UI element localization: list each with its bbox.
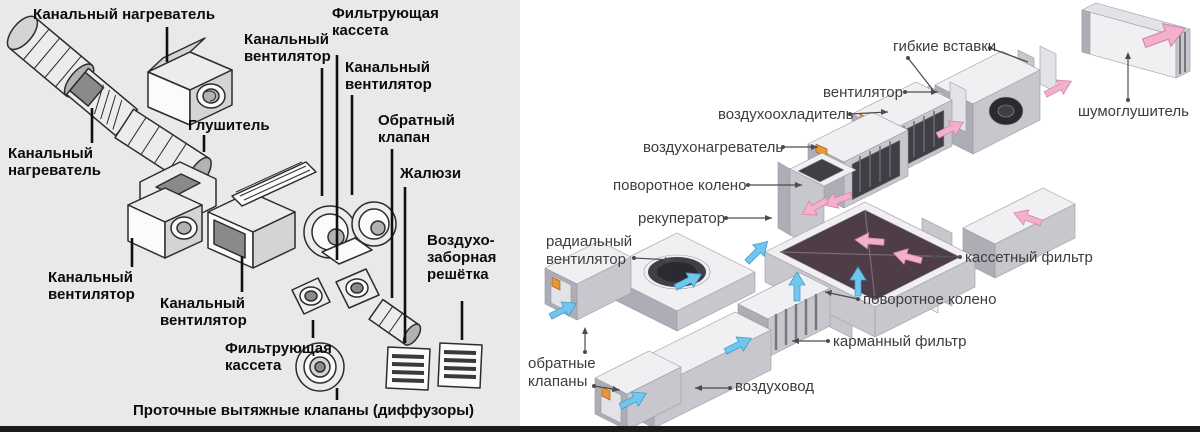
check-valve-unit — [369, 300, 424, 348]
label-filter-cassette-top: Фильтрующая кассета — [332, 5, 457, 39]
bottom-edge-bar — [0, 426, 1200, 432]
label-flexible-inserts: гибкие вставки — [893, 38, 996, 56]
label-duct-heater-left: Канальный нагреватель — [8, 145, 113, 179]
label-radial-fan: радиальный вентилятор — [546, 233, 641, 269]
label-air-duct: воздуховод — [735, 378, 814, 396]
square-grille-2 — [438, 343, 482, 388]
label-air-intake-grille: Воздухо-заборная решётка — [427, 232, 527, 283]
label-duct-fan-bottom-mid: Канальный вентилятор — [160, 295, 258, 329]
label-cassette-filter: кассетный фильтр — [965, 249, 1093, 267]
label-silencer: Глушитель — [188, 117, 270, 134]
label-air-cooler: воздухоохладитель — [718, 106, 853, 124]
label-check-valves: обратные клапаны — [528, 355, 620, 391]
louvre-slats — [232, 162, 316, 206]
label-recuperator: рекуператор — [638, 210, 725, 228]
label-duct-heater-top: Канальный нагреватель — [33, 6, 215, 23]
label-duct-fan-mid: Канальный вентилятор — [345, 59, 437, 93]
label-turn-elbow-return: поворотное колено — [863, 291, 996, 309]
filter-cassette-boxes — [292, 269, 379, 314]
label-filter-cassette-bottom: Фильтрующая кассета — [225, 340, 340, 374]
label-check-valve: Обратный клапан — [378, 112, 478, 146]
label-diffusers-caption: Проточные вытяжные клапаны (диффузоры) — [133, 402, 474, 419]
label-turn-elbow-supply: поворотное колено — [613, 177, 746, 195]
label-duct-fan-top-right: Канальный вентилятор — [244, 31, 336, 65]
ventilation-diagrams: Канальный нагреватель Канальный вентилят… — [0, 0, 1200, 432]
label-louvers: Жалюзи — [400, 165, 461, 182]
label-fan: вентилятор — [823, 84, 903, 102]
label-noise-silencer: шумоглушитель — [1078, 103, 1189, 121]
label-air-heater: воздухонагреватель — [643, 139, 783, 157]
duct-fan-box-center — [208, 192, 295, 268]
square-grille-1 — [386, 347, 430, 390]
label-duct-fan-bottom-left: Канальный вентилятор — [48, 269, 146, 303]
duct-fan-box-top — [148, 38, 232, 125]
label-pocket-filter: карманный фильтр — [833, 333, 966, 351]
